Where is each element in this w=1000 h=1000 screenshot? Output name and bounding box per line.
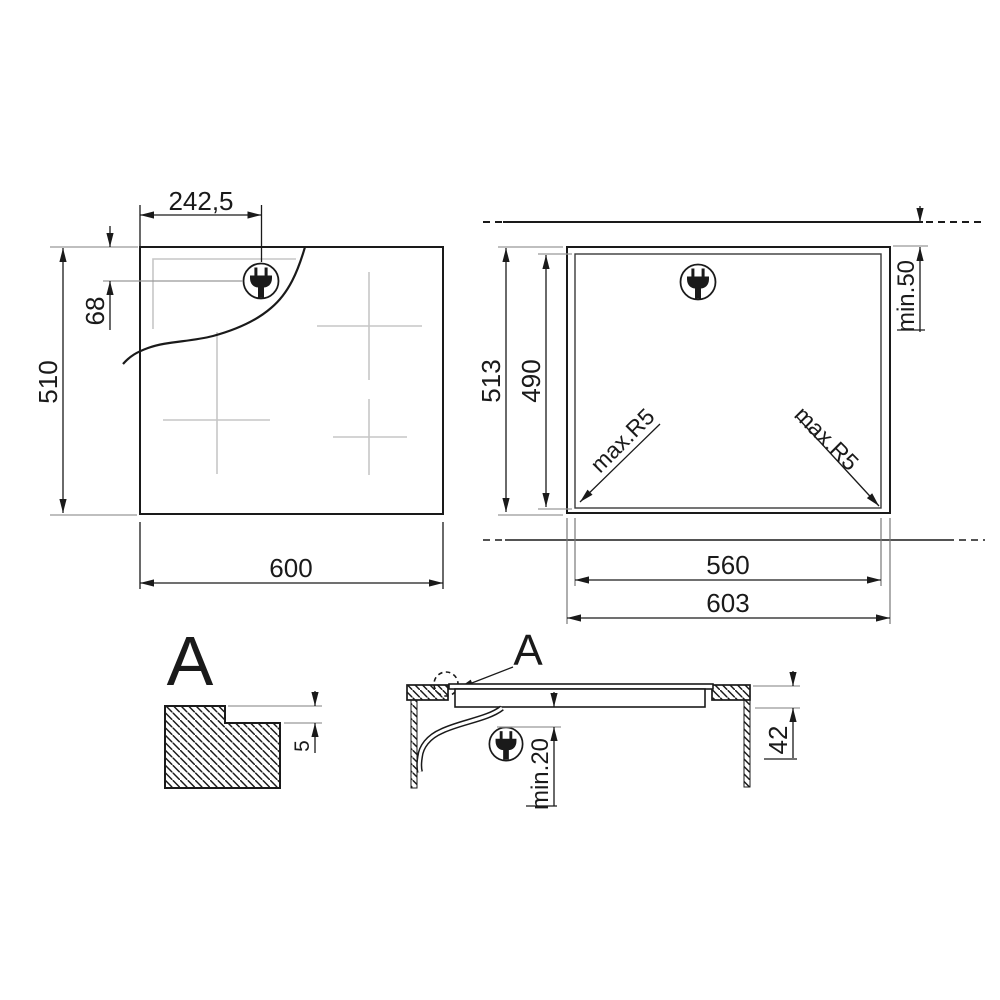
- power-plug-icon: [681, 265, 716, 300]
- dim-label: 603: [706, 588, 749, 618]
- hob-installation-drawing: 242,5 68 510 600: [0, 0, 1000, 1000]
- detail-a-view: A 5: [165, 622, 322, 788]
- worktop-right-block: [712, 685, 750, 700]
- worktop-section-profile: [165, 706, 280, 788]
- dim-label: 600: [269, 553, 312, 583]
- power-plug-icon: [489, 727, 522, 760]
- dim-label: 42: [763, 726, 793, 755]
- dim-label: 490: [516, 359, 546, 402]
- power-plug-icon: [244, 264, 279, 299]
- dim-label: 5: [291, 740, 314, 752]
- detail-label: A: [167, 622, 214, 700]
- section-view: A min.20: [407, 626, 800, 810]
- hob-outline: [140, 247, 443, 514]
- dim-label: 513: [476, 359, 506, 402]
- dimension-cutout-height: 490: [516, 254, 572, 509]
- dimension-cutout-width: 560: [575, 518, 881, 586]
- plan-view: 242,5 68 510 600: [33, 186, 443, 589]
- dim-label: 242,5: [168, 186, 233, 216]
- cutout-view: min.50 513 490 max.R5 max.R5: [476, 206, 985, 624]
- dim-label: 560: [706, 550, 749, 580]
- dimension-hob-width: 600: [140, 522, 443, 589]
- dimension-total-depth: 42: [753, 671, 800, 759]
- cutout-outer-outline: [567, 247, 890, 513]
- dimension-wall-clearance: min.50: [893, 206, 928, 332]
- worktop-left-block: [407, 685, 448, 700]
- cabinet-side-right: [744, 700, 750, 787]
- technical-drawing-page: 242,5 68 510 600: [0, 0, 1000, 1000]
- hob-body: [455, 689, 705, 707]
- dimension-hob-height: 510: [33, 248, 137, 515]
- dim-label: min.50: [893, 260, 920, 332]
- section-detail-label: A: [513, 626, 543, 675]
- cabinet-side-left: [411, 700, 417, 788]
- dim-label: min.20: [527, 738, 554, 810]
- dim-label: 510: [33, 360, 63, 403]
- dim-label: 68: [80, 297, 110, 326]
